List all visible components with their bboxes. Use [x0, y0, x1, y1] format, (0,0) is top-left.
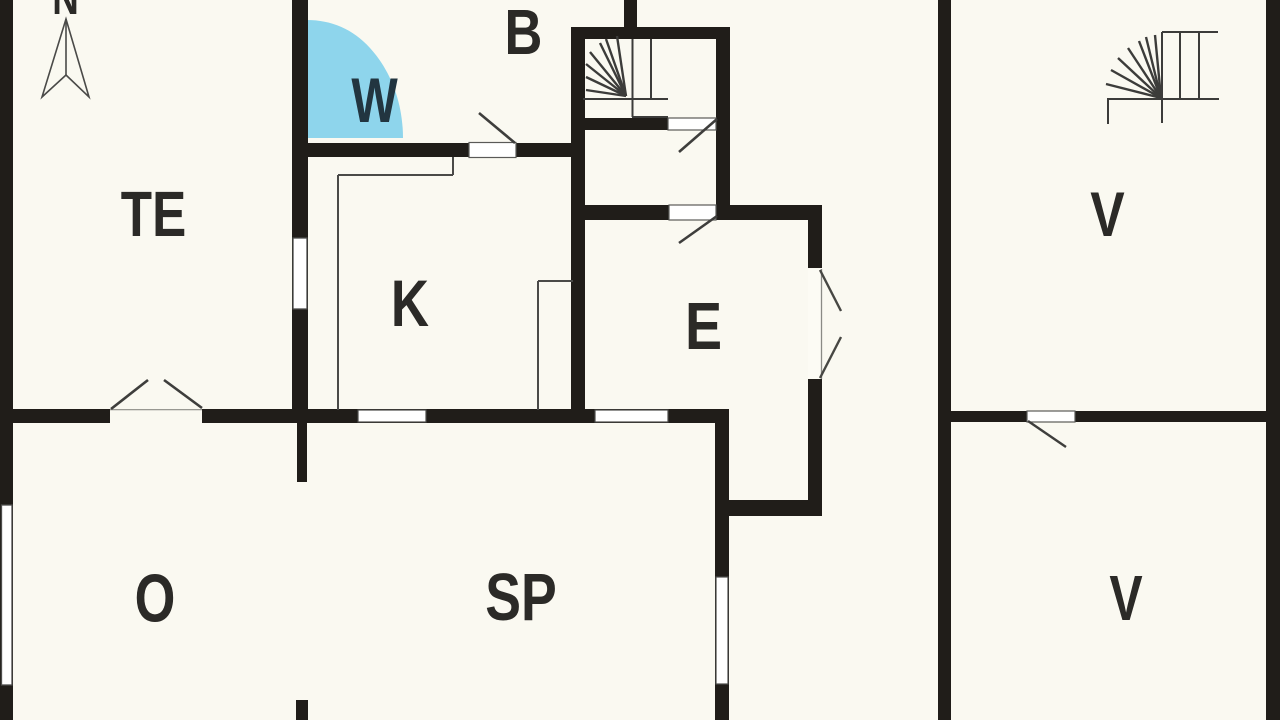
svg-text:TE: TE	[121, 180, 186, 251]
svg-text:N: N	[52, 0, 79, 24]
svg-text:O: O	[135, 560, 176, 636]
svg-text:V: V	[1090, 180, 1125, 250]
svg-text:B: B	[505, 0, 543, 68]
svg-text:K: K	[391, 266, 429, 340]
svg-text:V: V	[1109, 563, 1142, 634]
svg-text:SP: SP	[485, 559, 556, 634]
svg-text:E: E	[685, 289, 722, 364]
svg-text:W: W	[351, 65, 398, 135]
